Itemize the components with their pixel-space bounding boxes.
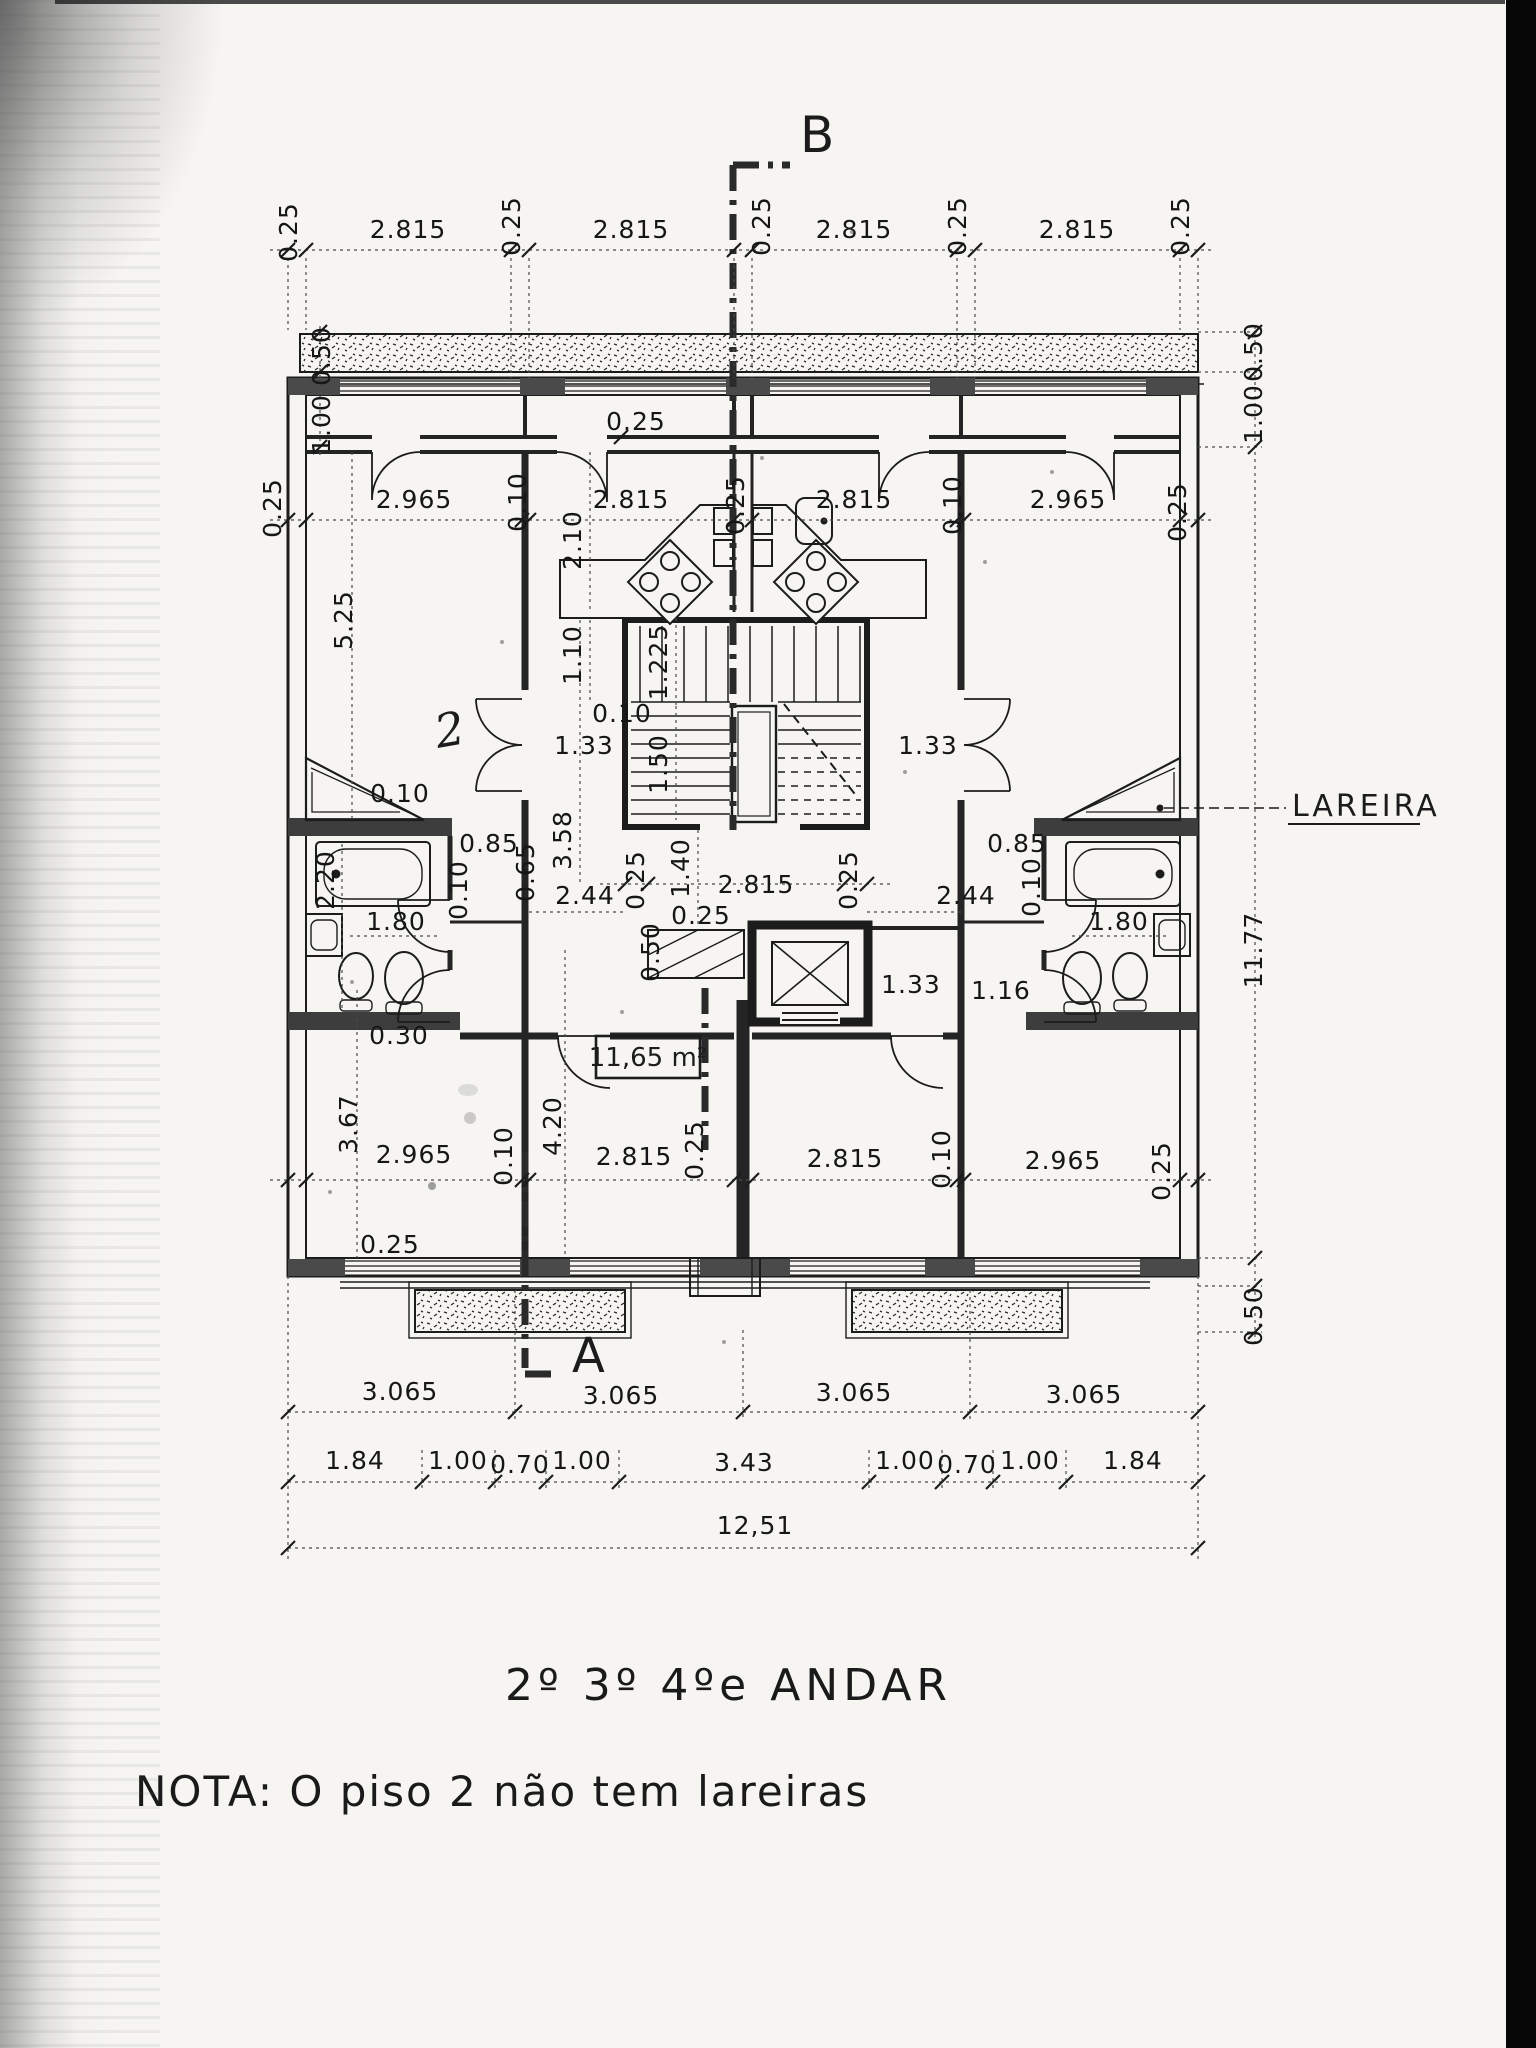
dimension-label: 1.33 [898, 731, 958, 760]
dimension-label: 5.25 [329, 590, 358, 650]
room-area-label: 11,65 m² [589, 1043, 707, 1073]
dimension-label: 0.25 [671, 901, 731, 930]
dimension-label: 3.065 [1046, 1380, 1123, 1409]
dimension-label: 3.065 [362, 1377, 439, 1406]
dimension-label: 1.10 [558, 625, 587, 685]
dimension-label: 2.965 [376, 1140, 453, 1169]
section-label-b: B [800, 106, 834, 164]
dimension-label: 0.25 [606, 407, 666, 436]
dimension-label: 0.25 [258, 478, 287, 538]
room-area-callout: 11,65 m² [589, 1036, 707, 1078]
dimension-label: 1.00 [1239, 384, 1268, 444]
dimension-label: 2.44 [555, 881, 615, 910]
dimension-label: 0.25 [1166, 196, 1195, 256]
dimension-label: 1.00 [428, 1446, 488, 1475]
toilet-icon [1063, 952, 1101, 1004]
floorplan-drawing: LAREIRA B A [0, 0, 1536, 2048]
dimension-label: 2.815 [816, 215, 893, 244]
dimension-label: 1.00 [1000, 1446, 1060, 1475]
dimension-label: 0.10 [503, 472, 532, 532]
scan-right-black-band [1506, 0, 1536, 2048]
dimension-label: 1.00 [875, 1446, 935, 1475]
dimension-label: 11.77 [1239, 912, 1268, 989]
scan-corner-blotch [0, 0, 220, 320]
dimension-label: 4.20 [538, 1096, 567, 1156]
dimension-label: 1.33 [554, 731, 614, 760]
dimension-label: 0.25 [360, 1230, 420, 1259]
dimension-label: 0.65 [511, 842, 540, 902]
bidet-icon [1113, 953, 1147, 999]
dimension-label: 3.67 [334, 1094, 363, 1154]
dimension-label: 0.25 [834, 850, 863, 910]
fireplace-label: LAREIRA [1292, 789, 1440, 824]
dimension-label: 0.50 [1239, 1286, 1268, 1346]
dimension-label: 2.965 [1030, 485, 1107, 514]
dimension-label: 1.40 [666, 838, 695, 898]
dimension-label: 1.50 [644, 734, 673, 794]
dimension-label: 0.25 [274, 202, 303, 262]
bidet-icon [339, 953, 373, 999]
handwritten-mark: 2 [430, 701, 469, 759]
dimension-label: 1.16 [971, 976, 1031, 1005]
dimension-label: 0.10 [1017, 857, 1046, 917]
dimension-label: 2.815 [370, 215, 447, 244]
dimension-label: 2.815 [718, 870, 795, 899]
dimension-label: 1.80 [1089, 907, 1149, 936]
section-label-a: A [572, 1328, 605, 1384]
dimension-label: 2.44 [936, 881, 996, 910]
dimension-label: 1.00 [307, 394, 336, 454]
dimension-label: 0.70 [937, 1450, 997, 1479]
dimension-label: 2.965 [376, 485, 453, 514]
elevator [752, 925, 868, 1024]
dimension-label: 0.10 [370, 779, 430, 808]
dimension-label: 0.25 [497, 196, 526, 256]
dimension-label: 0.25 [680, 1120, 709, 1180]
drawing-note: NOTA: O piso 2 não tem lareiras [135, 1767, 869, 1816]
dimension-label: 0.10 [592, 699, 652, 728]
dimension-label: 0.10 [489, 1126, 518, 1186]
dimension-label: 0.25 [721, 475, 750, 535]
dimension-label: 12,51 [717, 1511, 794, 1540]
dimension-label: 2.815 [1039, 215, 1116, 244]
dimension-label: 1.84 [1103, 1446, 1163, 1475]
dimension-label: 0.25 [747, 196, 776, 256]
dimension-label: 2.20 [311, 850, 340, 910]
dimension-label: 1.00 [552, 1446, 612, 1475]
kitchen-right [752, 498, 926, 624]
dimension-label: 2.815 [593, 215, 670, 244]
dimension-label: 3.43 [714, 1448, 774, 1477]
dimension-label: 0.85 [987, 829, 1047, 858]
dimension-label: 0.50 [1239, 322, 1268, 382]
drawing-title: 2º 3º 4ºe ANDAR [505, 1660, 952, 1711]
dimension-label: 0.25 [1147, 1141, 1176, 1201]
fireplace-right [1062, 758, 1180, 820]
dimension-label: 0.25 [1163, 482, 1192, 542]
dimension-label: 1.80 [366, 907, 426, 936]
dimension-label: 3.065 [583, 1381, 660, 1410]
dimension-label: 3.58 [548, 810, 577, 870]
dimension-label: 2.815 [816, 485, 893, 514]
dimension-label: 0.10 [927, 1129, 956, 1189]
dimension-label: 0.85 [459, 829, 519, 858]
dimension-label: 0.25 [621, 850, 650, 910]
scanned-floorplan-page: { "page": { "title": "2º 3º 4ºe ANDAR", … [0, 0, 1536, 2048]
dimension-label: 2.815 [596, 1142, 673, 1171]
dimension-label: 2.815 [807, 1144, 884, 1173]
dimension-label: 1.33 [881, 970, 941, 999]
dimension-label: 1.225 [644, 624, 673, 701]
scan-top-edge-line [55, 0, 1505, 4]
dimension-label: 2.965 [1025, 1146, 1102, 1175]
dimension-label: 1.84 [325, 1446, 385, 1475]
dimension-label: 0.10 [444, 860, 473, 920]
dimension-label: 0.70 [490, 1450, 550, 1479]
dimension-label: 0.50 [636, 922, 665, 982]
dimension-label: 3.065 [816, 1378, 893, 1407]
dimension-label: 0.10 [938, 475, 967, 535]
dimension-label: 2.10 [558, 510, 587, 570]
dimension-label: 0.50 [307, 326, 336, 386]
dimension-label: 2.815 [593, 485, 670, 514]
dimension-label: 0.30 [369, 1021, 429, 1050]
dimension-label: 0.25 [943, 196, 972, 256]
